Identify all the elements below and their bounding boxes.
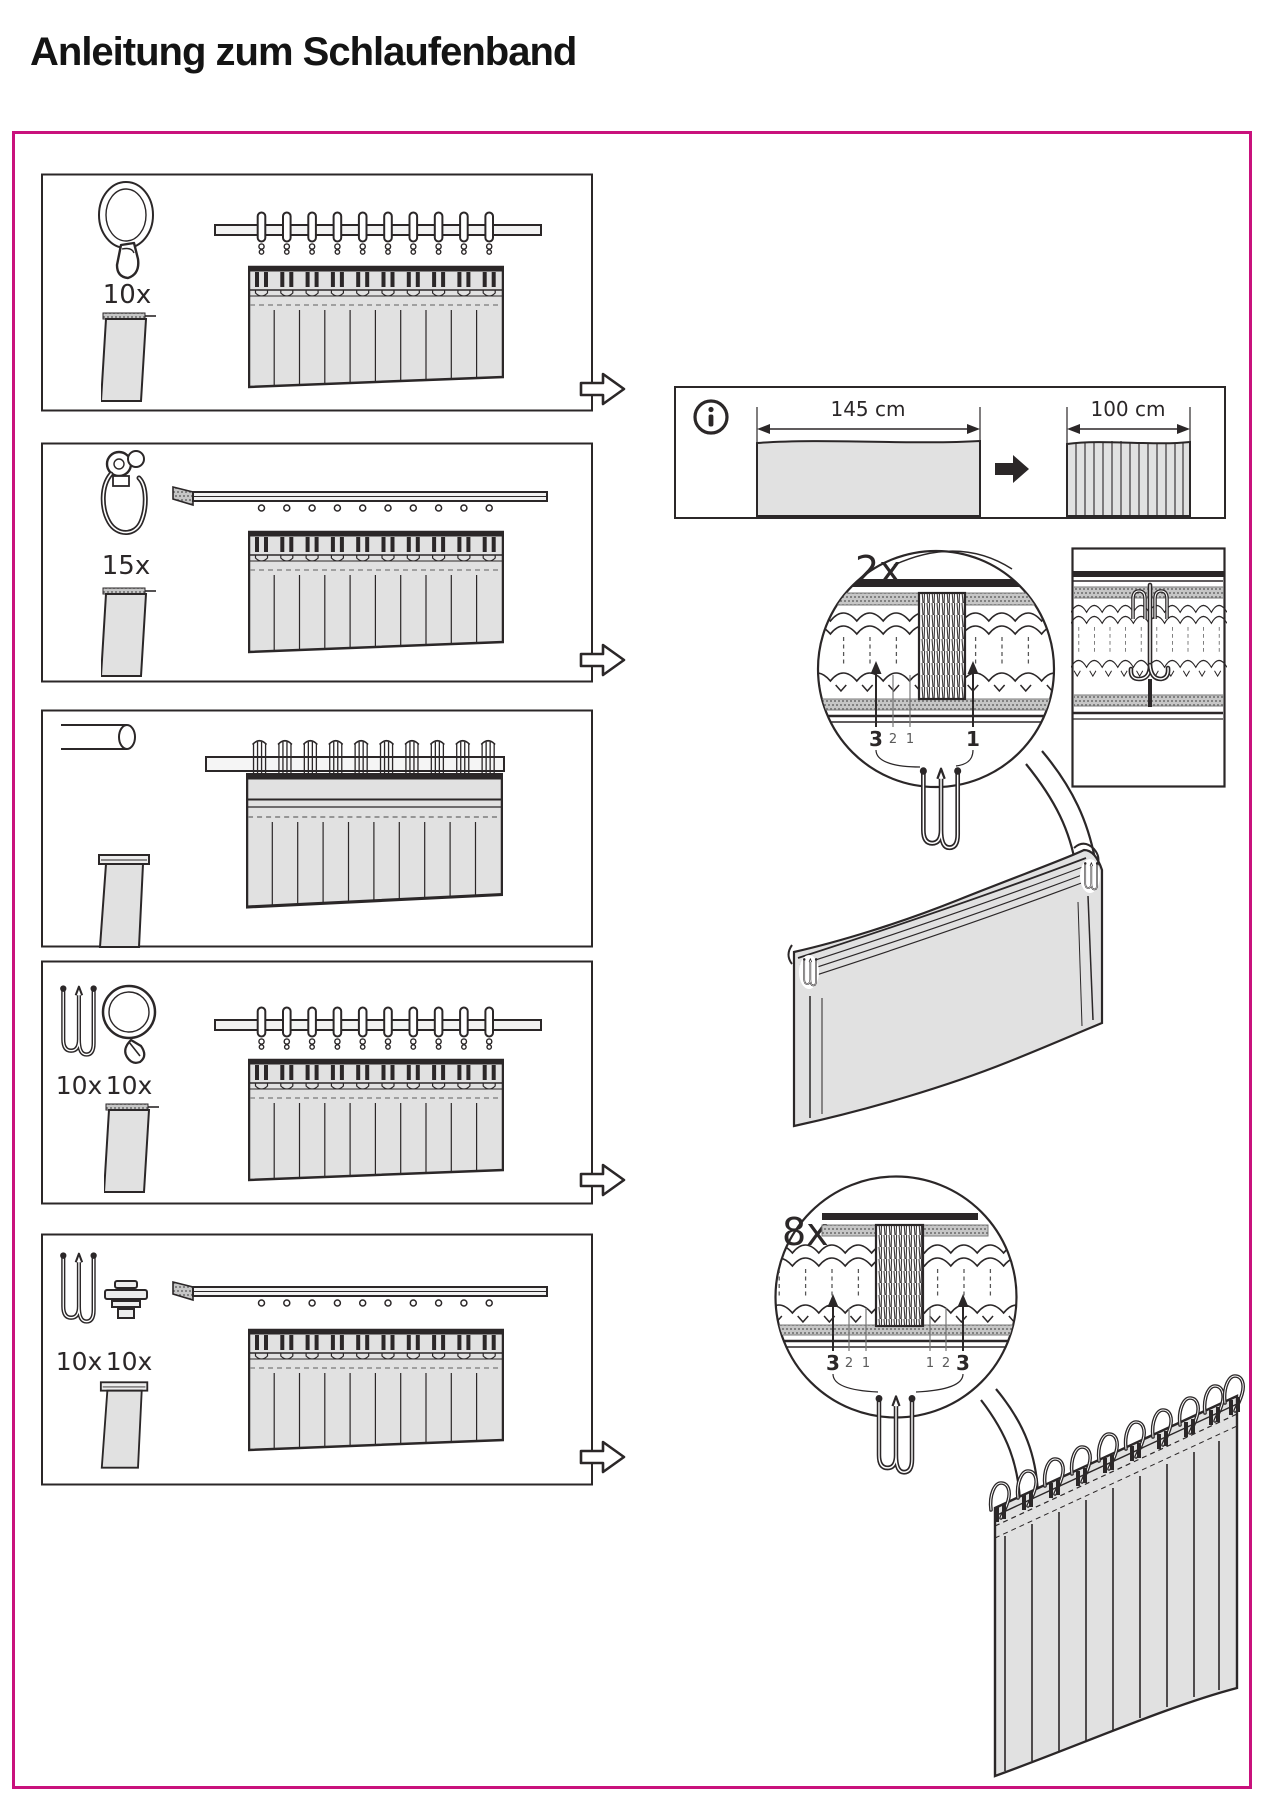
- gathered-pocket: [876, 1225, 923, 1326]
- pocket-label-3: 3: [826, 1351, 840, 1375]
- instruction-sheet: Anleitung zum Schlaufenband: [0, 0, 1265, 1800]
- count-label: 10x: [56, 1347, 103, 1376]
- pocket-label-2: 2: [845, 1356, 853, 1371]
- info-box: 145 cm 100 cm: [673, 385, 1251, 525]
- count-label: 15x: [102, 551, 150, 581]
- curtain-panel: [249, 1060, 503, 1180]
- curtain-panel: [249, 267, 503, 387]
- count-label: 10x: [106, 1347, 153, 1376]
- pocket-label-1: 1: [862, 1356, 870, 1371]
- step-box-2: 15x: [41, 442, 661, 686]
- flat-width-label: 145 cm: [830, 397, 905, 421]
- pocket-label-r2: 2: [942, 1356, 950, 1371]
- curtain-with-corner-hooks: [768, 818, 1113, 1133]
- pocket-label-right-1: 1: [966, 727, 980, 751]
- pocket-label-r1: 1: [926, 1356, 934, 1371]
- curtain-with-top-hooks: [958, 1368, 1248, 1796]
- pocket-label-3: 3: [869, 727, 883, 751]
- pocket-label-2: 2: [889, 732, 897, 747]
- step-box-3: [41, 709, 661, 949]
- pocket-label-1: 1: [906, 732, 914, 747]
- count-label: 10x: [106, 1071, 153, 1100]
- rolled-corner: [789, 945, 793, 964]
- step-box-1: 10x: [41, 173, 661, 415]
- hook-insert-detail-box: [1071, 547, 1229, 791]
- curtain-panel: [249, 1330, 503, 1450]
- step-box-5: 10x 10x: [41, 1233, 661, 1489]
- count-label: 10x: [56, 1071, 103, 1100]
- step-box-4: 10x 10x: [41, 960, 661, 1208]
- count-label: 10x: [103, 280, 151, 310]
- gathered-pocket: [919, 593, 965, 699]
- curtain-panel: [249, 532, 503, 652]
- gathered-width-label: 100 cm: [1090, 397, 1165, 421]
- page-title: Anleitung zum Schlaufenband: [30, 30, 576, 75]
- rod-through-loops-diagram: [206, 741, 504, 907]
